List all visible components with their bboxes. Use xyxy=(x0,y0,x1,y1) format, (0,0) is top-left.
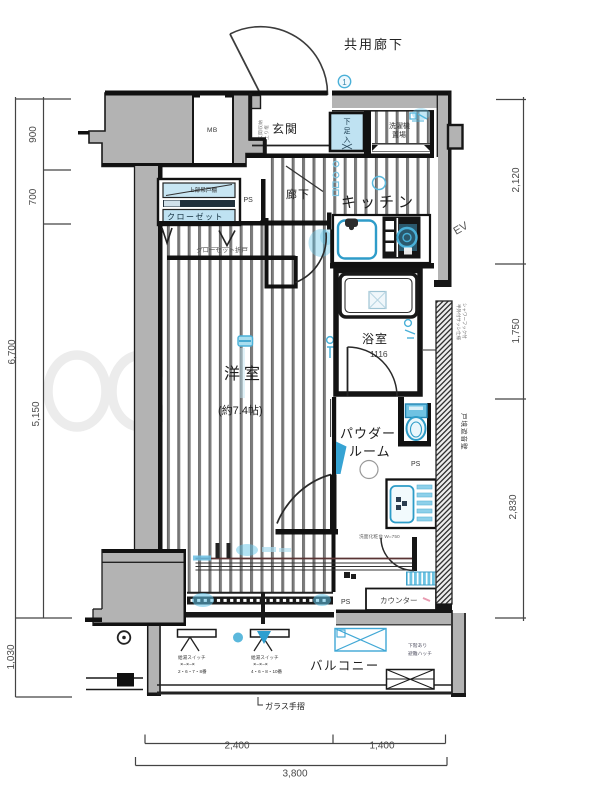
svg-text:給湯スイッチ: 給湯スイッチ xyxy=(178,654,206,661)
svg-text:PS: PS xyxy=(341,599,351,606)
svg-text:クローゼット折戸: クローゼット折戸 xyxy=(196,245,249,254)
svg-text:給湯スイッチ: 給湯スイッチ xyxy=(251,654,279,661)
svg-text:入: 入 xyxy=(344,136,351,144)
svg-text:洗面化粧台 W=750: 洗面化粧台 W=750 xyxy=(359,533,400,540)
svg-text:ガラス手摺: ガラス手摺 xyxy=(265,701,305,711)
svg-text:避難ハッチ: 避難ハッチ xyxy=(408,650,432,657)
svg-text:玄関: 玄関 xyxy=(272,121,298,136)
svg-text:共用廊下: 共用廊下 xyxy=(344,37,404,52)
svg-text:パウダー: パウダー xyxy=(340,426,396,441)
svg-text:玄関収納: 玄関収納 xyxy=(257,120,264,140)
svg-text:カウンター: カウンター xyxy=(380,596,418,605)
svg-text:洗濯機: 洗濯機 xyxy=(389,121,410,130)
svg-text:1,400: 1,400 xyxy=(369,741,394,752)
svg-text:下: 下 xyxy=(344,118,351,126)
svg-text:MB: MB xyxy=(207,127,218,134)
svg-text:✕–✕–✕: ✕–✕–✕ xyxy=(253,662,268,667)
svg-text:(約7.4帖): (約7.4帖) xyxy=(218,403,263,417)
svg-text:下階あり: 下階あり xyxy=(408,642,427,649)
svg-text:PS: PS xyxy=(411,461,421,468)
svg-text:戸境遮音壁: 戸境遮音壁 xyxy=(460,413,469,451)
svg-text:700: 700 xyxy=(28,188,39,205)
svg-text:シャワーフック付: シャワーフック付 xyxy=(461,303,468,339)
svg-text:PS: PS xyxy=(244,197,254,204)
svg-text:足: 足 xyxy=(344,127,351,135)
svg-text:1,030: 1,030 xyxy=(6,644,17,669)
svg-text:900: 900 xyxy=(28,126,39,143)
svg-text:1: 1 xyxy=(342,78,347,87)
svg-text:2,400: 2,400 xyxy=(224,741,249,752)
svg-text:クローゼット: クローゼット xyxy=(167,212,224,222)
svg-text:浴室: 浴室 xyxy=(362,331,388,346)
svg-text:2,120: 2,120 xyxy=(511,167,522,192)
svg-text:1,750: 1,750 xyxy=(511,318,522,343)
svg-text:キッチン: キッチン xyxy=(341,194,417,211)
svg-text:バルコニー: バルコニー xyxy=(310,659,380,673)
svg-text:上部吊戸棚: 上部吊戸棚 xyxy=(189,186,217,194)
svg-text:5,150: 5,150 xyxy=(31,401,42,426)
svg-text:2・6・7・8番: 2・6・7・8番 xyxy=(178,668,207,675)
svg-text:ルーム: ルーム xyxy=(349,444,391,459)
svg-text:廊下: 廊下 xyxy=(286,187,310,201)
svg-text:6,700: 6,700 xyxy=(7,339,18,364)
svg-text:半外付サッシ仕様: 半外付サッシ仕様 xyxy=(455,304,462,340)
svg-text:4・6・8・10番: 4・6・8・10番 xyxy=(251,668,283,675)
svg-text:2,830: 2,830 xyxy=(508,494,519,519)
svg-text:3,800: 3,800 xyxy=(282,769,307,780)
svg-text:置場: 置場 xyxy=(392,130,406,139)
svg-text:✕–✕–✕: ✕–✕–✕ xyxy=(180,662,195,667)
